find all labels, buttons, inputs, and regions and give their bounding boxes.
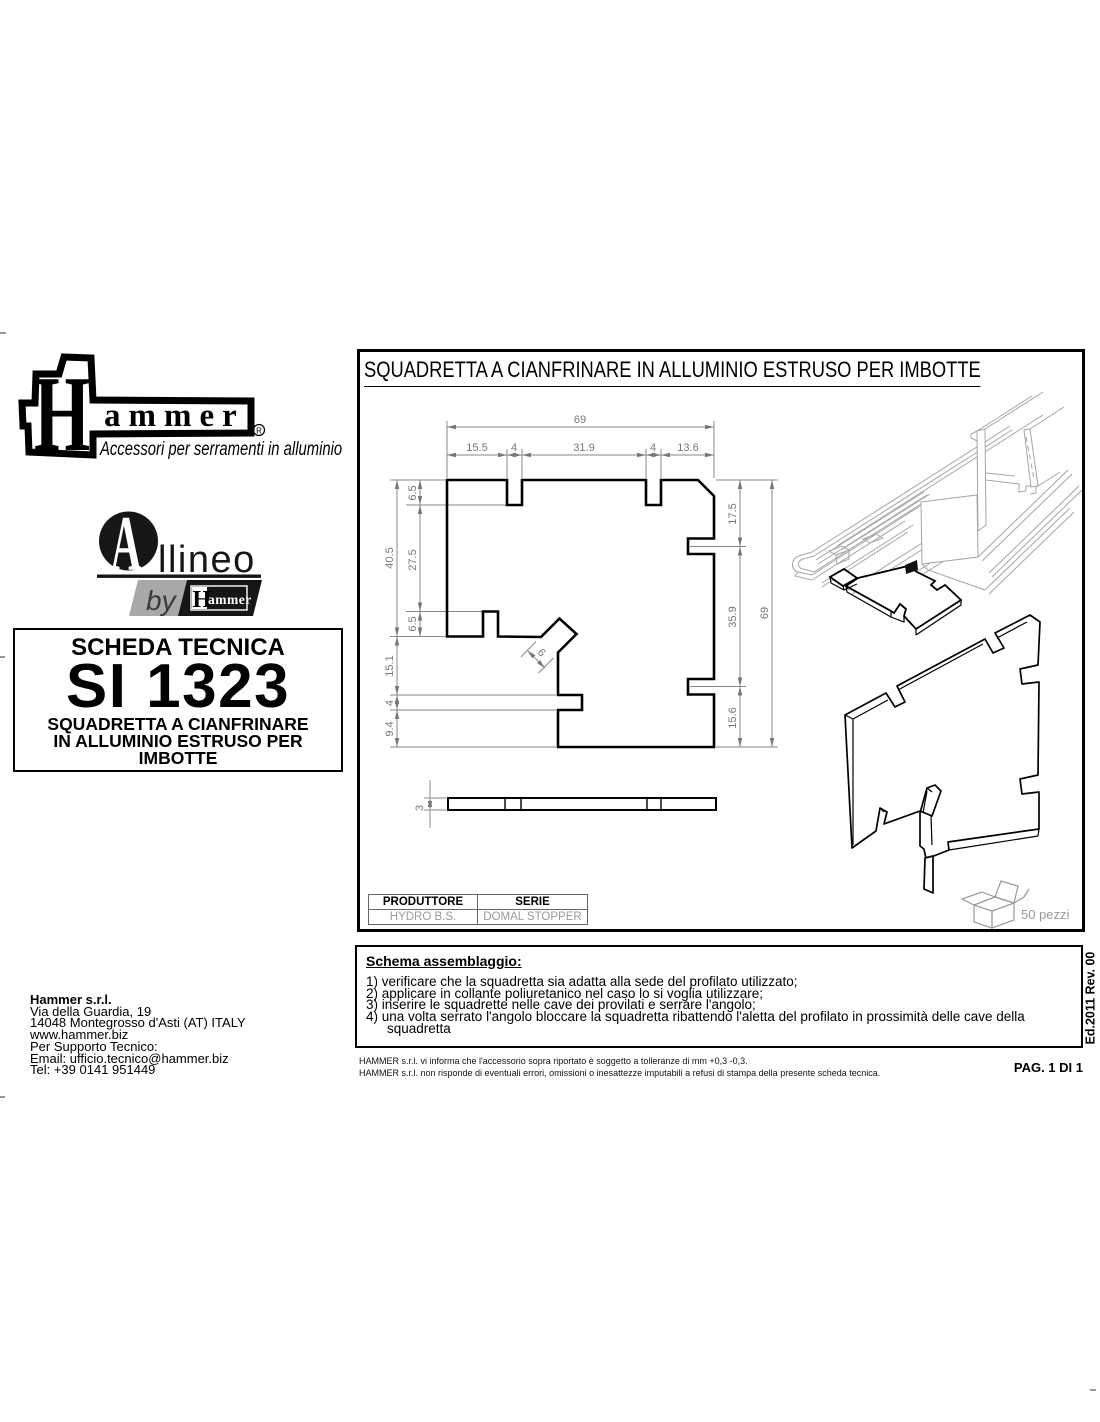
svg-text:69: 69: [759, 607, 771, 619]
svg-text:15.5: 15.5: [466, 442, 487, 454]
svg-text:6: 6: [535, 646, 548, 659]
svg-text:15.6: 15.6: [727, 707, 739, 728]
svg-text:6.5: 6.5: [407, 616, 419, 631]
svg-text:35.9: 35.9: [727, 606, 739, 627]
svg-text:31.9: 31.9: [573, 442, 594, 454]
svg-text:13.6: 13.6: [677, 442, 698, 454]
svg-text:50 pezzi: 50 pezzi: [1021, 907, 1070, 922]
svg-text:6.5: 6.5: [407, 485, 419, 500]
svg-text:27.5: 27.5: [407, 549, 419, 570]
svg-text:15.1: 15.1: [384, 655, 396, 676]
svg-text:4: 4: [650, 442, 656, 454]
svg-text:9.4: 9.4: [384, 721, 396, 736]
svg-text:69: 69: [574, 414, 586, 426]
svg-text:17.5: 17.5: [727, 503, 739, 524]
svg-text:4: 4: [384, 700, 396, 706]
svg-text:4: 4: [511, 442, 517, 454]
svg-text:40.5: 40.5: [384, 547, 396, 568]
svg-text:3: 3: [414, 805, 426, 811]
